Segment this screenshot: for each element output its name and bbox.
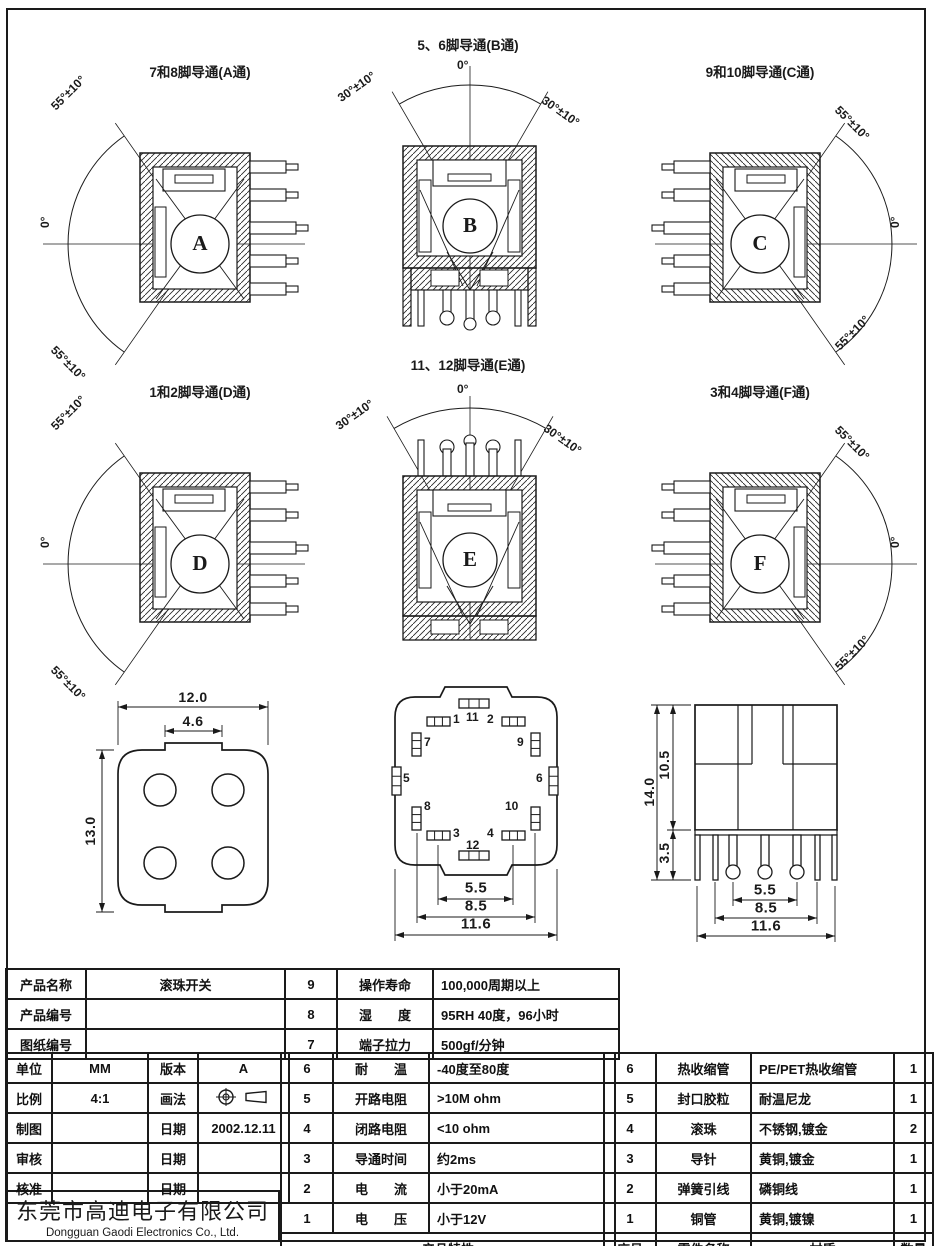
part-qty: 2: [894, 1113, 933, 1143]
section-drawing-a: [25, 55, 315, 385]
meta-label-1: 审核: [6, 1143, 52, 1173]
dim-pin-length: 3.5: [656, 843, 672, 864]
pin-number-1: 1: [453, 712, 460, 726]
pin-number-5: 5: [403, 771, 410, 785]
prop-value: 约2ms: [429, 1143, 615, 1173]
meta-label-2: 日期: [148, 1173, 198, 1203]
view-title-e: 11、12脚导通(E通): [323, 354, 613, 374]
side-dimension-view: 14.010.53.55.58.511.6: [645, 690, 885, 942]
section-view-c: 9和10脚导通(C通)55°±10°0°55°±10°C: [645, 55, 935, 385]
part-num: 3: [604, 1143, 656, 1173]
view-title-b: 5、6脚导通(B通): [323, 34, 613, 54]
info-value: [86, 999, 285, 1029]
prop-label: 电 压: [333, 1203, 429, 1233]
meta-value-2: [198, 1143, 289, 1173]
part-num: 4: [604, 1113, 656, 1143]
prop-value: -40度至80度: [429, 1053, 615, 1083]
section-view-e: 11、12脚导通(E通)30°±10°0°30°±10°E: [323, 348, 613, 678]
engineering-drawing-page: 东莞市高迪电子有限公司 Dongguan Gaodi Electronics C…: [0, 0, 935, 1246]
view-title-f: 3和4脚导通(F通): [645, 381, 875, 401]
pad-layout-view: 1234567891011125.58.511.6: [383, 683, 603, 945]
meta-label-1: 制图: [6, 1113, 52, 1143]
parts-header-material: 材质: [751, 1233, 894, 1246]
props-footer: 产品特性: [281, 1233, 615, 1246]
pin-number-3: 3: [453, 826, 460, 840]
pin-number-12: 12: [466, 838, 479, 852]
view-title-d: 1和2脚导通(D通): [85, 381, 315, 401]
angle-label: 0°: [888, 537, 902, 548]
side-dim-1: 8.5: [755, 900, 777, 917]
meta-label-2: 画法: [148, 1083, 198, 1113]
prop-num: 3: [281, 1143, 333, 1173]
prop-num: 9: [285, 969, 337, 999]
meta-value-1: [52, 1173, 148, 1203]
prop-value: 小于12V: [429, 1203, 615, 1233]
info-value: 滚珠开关: [86, 969, 285, 999]
meta-value-1: [52, 1113, 148, 1143]
part-name: 弹簧引线: [656, 1173, 751, 1203]
pin-number-9: 9: [517, 735, 524, 749]
properties-table: 6耐 温-40度至80度5开路电阻>10M ohm4闭路电阻<10 ohm3导通…: [280, 1052, 616, 1246]
part-material: 黄铜,镀镍: [751, 1203, 894, 1233]
side-dim-0: 5.5: [754, 882, 776, 899]
prop-label: 操作寿命: [337, 969, 433, 999]
part-material: PE/PET热收缩管: [751, 1053, 894, 1083]
ball-letter-b: B: [463, 213, 477, 238]
pad-dim-0: 5.5: [465, 880, 487, 897]
pin-number-11: 11: [466, 710, 479, 724]
part-material: 磷铜线: [751, 1173, 894, 1203]
part-material: 耐温尼龙: [751, 1083, 894, 1113]
section-view-f: 3和4脚导通(F通)55°±10°0°55°±10°F: [645, 375, 935, 705]
prop-value: <10 ohm: [429, 1113, 615, 1143]
drawing-method-symbol: [198, 1083, 289, 1113]
meta-label-2: 日期: [148, 1143, 198, 1173]
prop-num: 1: [281, 1203, 333, 1233]
meta-value-1: [52, 1143, 148, 1173]
pin-number-2: 2: [487, 712, 494, 726]
prop-value: 95RH 40度，96小时: [433, 999, 619, 1029]
company-name-en: Dongguan Gaodi Electronics Co., Ltd.: [46, 1227, 239, 1239]
meta-table: 单位MM版本A比例4:1画法制图日期2002.12.11审核日期核准日期: [5, 1052, 290, 1204]
meta-value-2: A: [198, 1053, 289, 1083]
meta-label-1: 比例: [6, 1083, 52, 1113]
prop-value: 小于20mA: [429, 1173, 615, 1203]
meta-value-2: 2002.12.11: [198, 1113, 289, 1143]
prop-label: 湿 度: [337, 999, 433, 1029]
dim-body-height: 10.5: [656, 750, 672, 779]
part-name: 滚珠: [656, 1113, 751, 1143]
meta-value-1: 4:1: [52, 1083, 148, 1113]
prop-value: >10M ohm: [429, 1083, 615, 1113]
part-name: 热收缩管: [656, 1053, 751, 1083]
section-view-a: 7和8脚导通(A通)55°±10°0°55°±10°A: [25, 55, 315, 385]
ball-letter-e: E: [463, 547, 477, 572]
part-qty: 1: [894, 1203, 933, 1233]
dim-label-width: 12.0: [178, 689, 207, 705]
view-title-c: 9和10脚导通(C通): [645, 61, 875, 81]
info-label: 产品编号: [6, 999, 86, 1029]
part-qty: 1: [894, 1143, 933, 1173]
prop-num: 6: [281, 1053, 333, 1083]
pad-dim-1: 8.5: [465, 898, 487, 915]
pin-number-4: 4: [487, 826, 494, 840]
meta-label-2: 版本: [148, 1053, 198, 1083]
parts-header-qty: 数量: [894, 1233, 933, 1246]
ball-letter-f: F: [754, 551, 767, 576]
dim-total-height: 14.0: [641, 777, 657, 806]
meta-value-1: MM: [52, 1053, 148, 1083]
pad-dim-2: 11.6: [461, 916, 491, 933]
meta-label-1: 单位: [6, 1053, 52, 1083]
prop-label: 耐 温: [333, 1053, 429, 1083]
dim-label-height: 13.0: [82, 816, 98, 845]
pin-number-8: 8: [424, 799, 431, 813]
part-num: 2: [604, 1173, 656, 1203]
angle-label: 0°: [888, 217, 902, 228]
part-name: 封口胶粒: [656, 1083, 751, 1113]
part-name: 铜管: [656, 1203, 751, 1233]
prop-label: 电 流: [333, 1173, 429, 1203]
part-num: 5: [604, 1083, 656, 1113]
prop-label: 导通时间: [333, 1143, 429, 1173]
prop-num: 4: [281, 1113, 333, 1143]
pin-number-6: 6: [536, 771, 543, 785]
ball-letter-a: A: [192, 231, 207, 256]
angle-label: 0°: [457, 382, 468, 396]
prop-num: 2: [281, 1173, 333, 1203]
view-title-a: 7和8脚导通(A通): [85, 61, 315, 81]
part-name: 导针: [656, 1143, 751, 1173]
part-num: 1: [604, 1203, 656, 1233]
pin-number-7: 7: [424, 735, 431, 749]
meta-value-2: [198, 1173, 289, 1203]
bottom-dimension-view: 12.04.613.0: [70, 685, 330, 930]
angle-label: 0°: [38, 217, 52, 228]
ball-letter-c: C: [752, 231, 767, 256]
section-view-b: 5、6脚导通(B通)30°±10°0°30°±10°B: [323, 28, 613, 358]
dim-label-notch: 4.6: [183, 713, 204, 729]
section-view-d: 1和2脚导通(D通)55°±10°0°55°±10°D: [25, 375, 315, 705]
prop-num: 8: [285, 999, 337, 1029]
angle-label: 0°: [38, 537, 52, 548]
parts-header-num: 序号: [604, 1233, 656, 1246]
prop-num: 5: [281, 1083, 333, 1113]
parts-table: 6热收缩管PE/PET热收缩管15封口胶粒耐温尼龙14滚珠不锈钢,镀金23导针黄…: [603, 1052, 934, 1246]
ball-letter-d: D: [192, 551, 207, 576]
prop-label: 闭路电阻: [333, 1113, 429, 1143]
meta-label-1: 核准: [6, 1173, 52, 1203]
part-qty: 1: [894, 1053, 933, 1083]
info-label: 产品名称: [6, 969, 86, 999]
prop-label: 开路电阻: [333, 1083, 429, 1113]
first-angle-projection-icon: [214, 1088, 274, 1106]
info-table: 产品名称滚珠开关9操作寿命100,000周期以上产品编号8湿 度95RH 40度…: [5, 968, 620, 1060]
meta-label-2: 日期: [148, 1113, 198, 1143]
part-qty: 1: [894, 1173, 933, 1203]
section-drawing-d: [25, 375, 315, 705]
parts-header-name: 零件名称: [656, 1233, 751, 1246]
part-material: 不锈钢,镀金: [751, 1113, 894, 1143]
pin-number-10: 10: [505, 799, 518, 813]
angle-label: 0°: [457, 58, 468, 72]
side-dim-2: 11.6: [751, 918, 781, 935]
part-material: 黄铜,镀金: [751, 1143, 894, 1173]
prop-value: 100,000周期以上: [433, 969, 619, 999]
part-qty: 1: [894, 1083, 933, 1113]
part-num: 6: [604, 1053, 656, 1083]
